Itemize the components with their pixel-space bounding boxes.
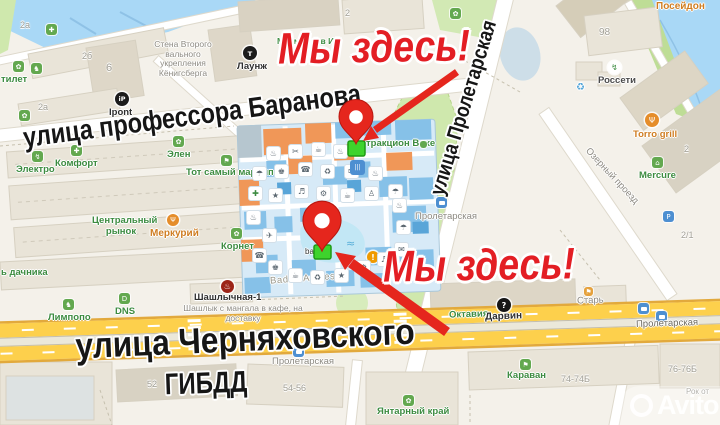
mall-unit-icon: ✈ — [262, 228, 277, 243]
mall-unit-icon: ☕ — [340, 188, 355, 203]
recycle-icon: ♻ — [576, 82, 585, 93]
bus-stop-icon[interactable] — [436, 197, 447, 208]
mall-unit-icon: ☎ — [252, 248, 267, 263]
building-number: 2/1 — [681, 230, 694, 240]
building-number: 98 — [599, 27, 610, 38]
kornet-icon[interactable]: ✿ — [231, 228, 242, 239]
we-are-here-label-2: Мы здесь! — [383, 239, 576, 292]
mall-unit-icon: ✂ — [288, 144, 303, 159]
mall-unit-icon: ⚙ — [316, 186, 331, 201]
elen-icon[interactable]: ✿ — [173, 136, 184, 147]
karavan-icon[interactable]: ⚑ — [520, 359, 531, 370]
poi-label-stena[interactable]: Стена Второго вального укрепления Кёнигс… — [147, 40, 219, 78]
poi-label-rosseti[interactable]: Россети — [598, 75, 636, 86]
building-number: 2б — [82, 51, 92, 61]
mall-unit-icon: ★ — [268, 188, 283, 203]
watermark-brand: Avito — [657, 390, 719, 421]
mall-unit-icon: ♻ — [320, 164, 335, 179]
building-number: 2а — [38, 102, 48, 112]
building-number: 6 — [106, 62, 112, 74]
poi-label-shashlychnaya[interactable]: Шашлычная-1 — [194, 292, 261, 303]
hotel-icon[interactable]: ⌂ — [652, 157, 663, 168]
mall-unit-icon: ☎ — [298, 162, 313, 177]
poi-label-limpopo[interactable]: Лимпопо — [48, 312, 91, 323]
building-number: 52 — [147, 379, 157, 389]
mall-unit-icon: ☂ — [252, 166, 267, 181]
mall-unit-icon: ☂ — [396, 220, 411, 235]
park-poi-icon[interactable]: ✿ — [450, 8, 461, 19]
poi-label-rynok[interactable]: Центральный рынок — [92, 215, 150, 237]
street-caption-gibdd: ГИБДД — [164, 366, 247, 403]
limpopo-icon[interactable]: ♞ — [63, 299, 74, 310]
avito-watermark: Avito — [618, 386, 720, 425]
pharmacy-icon[interactable]: ✚ — [46, 24, 57, 35]
poi-label-kornet[interactable]: Корнет — [221, 241, 254, 252]
pool-wave-icon: ≈ — [318, 230, 327, 243]
poi-label-yantarny[interactable]: Янтарный край — [377, 406, 449, 417]
flower-shop-icon[interactable]: ✿ — [13, 61, 24, 72]
mall-unit-icon: ♬ — [294, 184, 309, 199]
poi-label-elen[interactable]: Элен — [167, 149, 190, 160]
mall-unit-icon: ♨ — [368, 166, 383, 181]
poi-label-torro-grill[interactable]: Torro grill — [633, 129, 677, 140]
t-lounge-icon[interactable]: т — [243, 46, 257, 60]
poi-label-mercure[interactable]: Mercure — [639, 170, 676, 181]
mall-unit-icon: ♨ — [246, 210, 261, 225]
stop-label-proletarskaya-mall[interactable]: Пролетарская — [415, 211, 477, 222]
camera-icon — [630, 394, 653, 417]
poi-dot-icon — [420, 141, 427, 148]
bus-stop-icon[interactable] — [638, 303, 649, 314]
building-number: 2 — [684, 144, 689, 154]
mall-unit-icon: ♙ — [364, 186, 379, 201]
poi-label-t-lounge[interactable]: Лаунж — [237, 61, 267, 72]
mall-unit-icon: ♨ — [266, 146, 281, 161]
pool-wave-icon: ≈ — [346, 237, 355, 250]
map-screenshot: Стена Второго вального укрепления Кёнигс… — [0, 0, 720, 425]
building-number: 74-74Б — [561, 374, 590, 384]
poi-label-karavan[interactable]: Караван — [507, 370, 546, 381]
parking-icon: P — [663, 211, 674, 222]
we-are-here-label-1: Мы здесь! — [278, 21, 471, 74]
building-number: 76-76Б — [668, 364, 697, 374]
poi-label-star[interactable]: Старь — [577, 295, 604, 307]
mall-unit-icon: ♚ — [268, 260, 283, 275]
pet-shop-icon[interactable]: ♞ — [31, 63, 42, 74]
building-number: 2а — [20, 20, 30, 30]
rosseti-icon[interactable]: ↯ — [608, 61, 621, 74]
stop-label-proletarskaya-right[interactable]: Пролетарская — [636, 317, 698, 330]
mall-unit-icon: ⚙ — [356, 260, 371, 275]
street-label-ozerny: Озерный проезд — [583, 146, 641, 207]
mall-unit-icon: ♨ — [392, 198, 407, 213]
dns-icon[interactable]: D — [119, 293, 130, 304]
poi-label-merkuriy[interactable]: Меркурий — [150, 228, 199, 239]
poi-label-poseidon[interactable]: Посейдон — [656, 1, 705, 12]
poi-label-oktavia[interactable]: Октавия — [449, 308, 489, 320]
poi-label-dachnika[interactable]: ь дачника — [1, 267, 48, 278]
mall-unit-icon: ☂ — [388, 184, 403, 199]
mall-flags-icon: ||| — [350, 160, 365, 175]
mall-unit-icon: ☕ — [311, 142, 326, 157]
building-number: 54-56 — [283, 383, 306, 393]
ipont-icon[interactable]: iP — [115, 92, 129, 106]
flower-shop-icon[interactable]: ✿ — [19, 110, 30, 121]
building-number: 2 — [345, 8, 350, 18]
yantarny-icon[interactable]: ✿ — [403, 395, 414, 406]
poi-label-bali[interactable]: bali — [305, 247, 317, 256]
mall-pharmacy-icon: ✚ — [248, 186, 263, 201]
mall-unit-icon: ★ — [334, 268, 349, 283]
poi-label-elektro[interactable]: Электро — [16, 164, 55, 175]
merkuriy-icon[interactable]: Ψ — [167, 214, 179, 226]
mall-unit-icon: ☕ — [288, 268, 303, 283]
marcipan-icon[interactable]: ⚑ — [221, 155, 232, 166]
poi-label-darvin[interactable]: Дарвин — [485, 310, 523, 322]
mall-unit-icon: ♚ — [274, 164, 289, 179]
torro-grill-icon[interactable]: Ψ — [645, 113, 659, 127]
mall-unit-icon: ♻ — [310, 270, 325, 285]
poi-label-tilet[interactable]: тилет — [1, 74, 27, 85]
poi-label-tot-samy[interactable]: Тот самый марципан — [186, 167, 285, 178]
poi-label-dns[interactable]: DNS — [115, 306, 135, 317]
poi-label-komfort[interactable]: Комфорт — [55, 158, 98, 169]
mall-unit-icon: ♨ — [333, 144, 348, 159]
